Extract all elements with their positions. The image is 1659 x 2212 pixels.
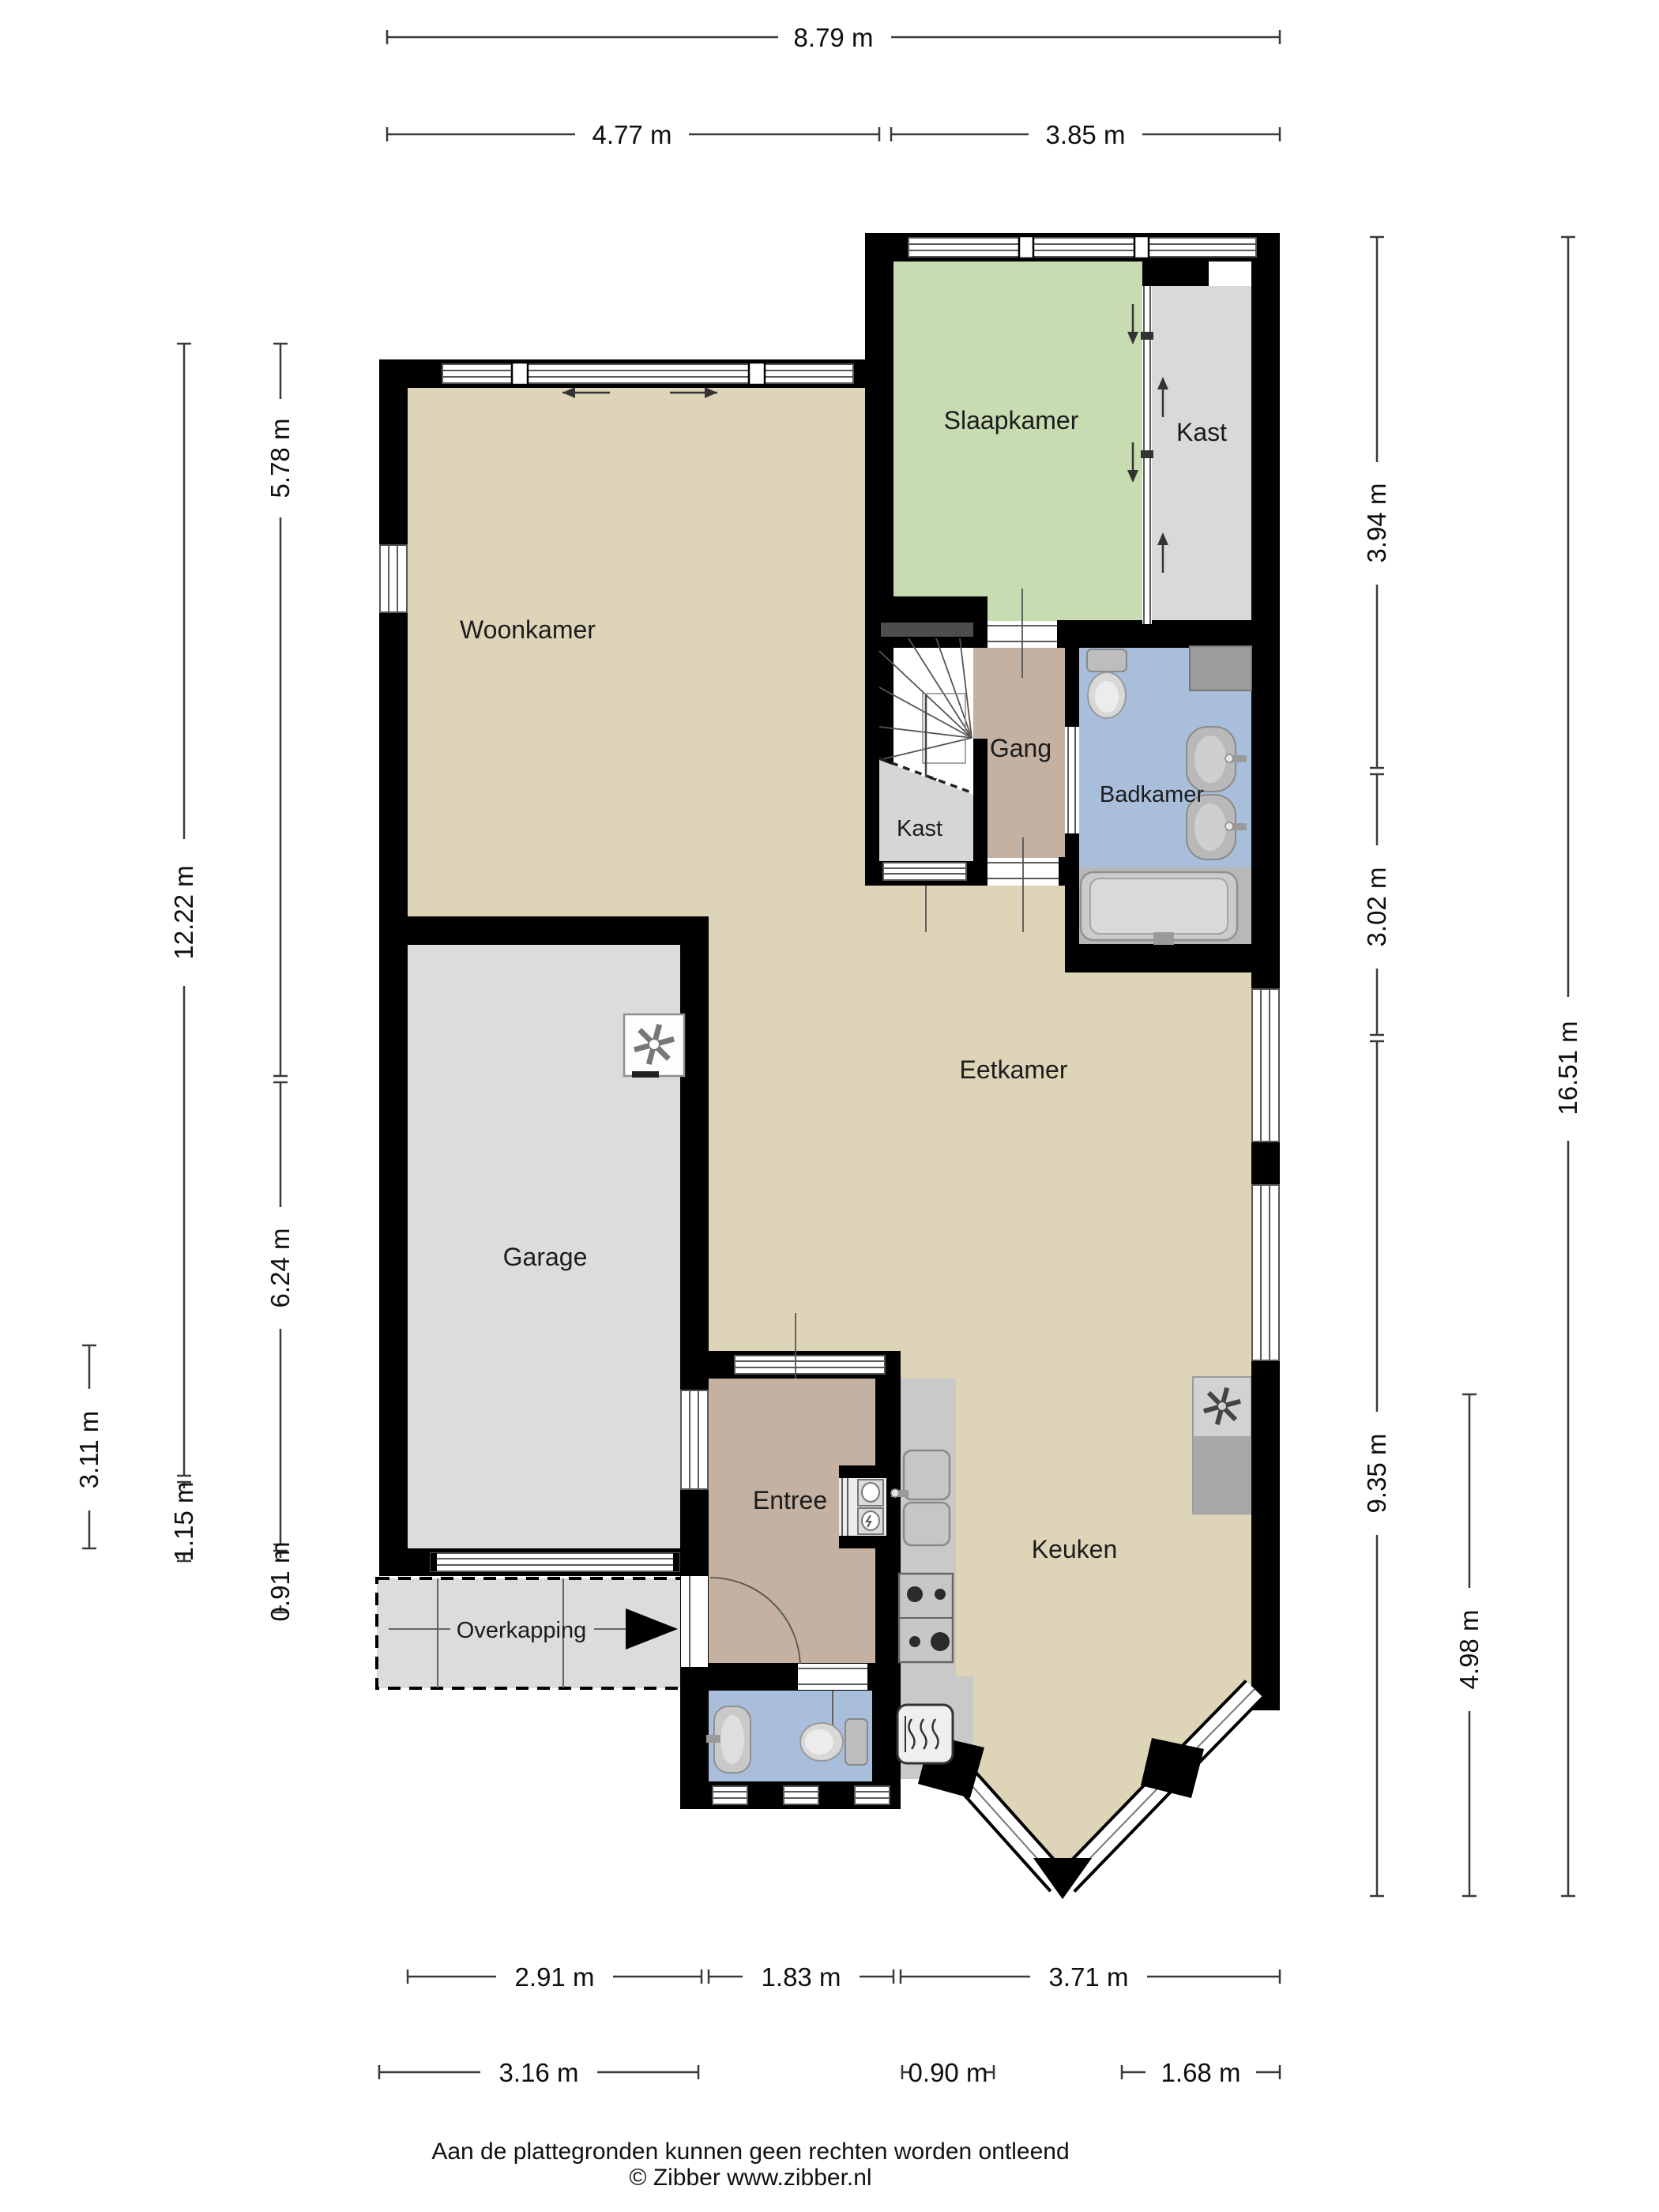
room-label-kast-trap: Kast <box>897 816 942 841</box>
dim-left-small: 0.91 m <box>265 1542 295 1622</box>
footer-copyright: © Zibber www.zibber.nl <box>629 2165 871 2191</box>
dim-bottom-entree: 1.83 m <box>709 1962 893 1992</box>
svg-text:5.78 m: 5.78 m <box>265 419 295 498</box>
bathroom-cabinet <box>1190 646 1251 690</box>
dim-bottom-small: 0.90 m <box>902 2058 994 2087</box>
svg-text:8.79 m: 8.79 m <box>794 23 874 52</box>
dim-right-badkamer: 3.02 m <box>1362 774 1391 1035</box>
dim-top-left: 4.77 m <box>387 120 879 149</box>
room-label-eetkamer: Eetkamer <box>960 1055 1068 1084</box>
room-label-kast-slaapkamer: Kast <box>1176 418 1227 446</box>
floor-kast-slaapkamer <box>1147 286 1266 624</box>
svg-text:3.16 m: 3.16 m <box>499 2058 579 2087</box>
dim-bottom-garage-outer: 3.16 m <box>379 2058 698 2087</box>
dim-left-total: 12.22 m <box>169 344 198 1476</box>
dim-right-total: 16.51 m <box>1553 237 1582 1896</box>
svg-text:12.22 m: 12.22 m <box>169 865 198 959</box>
dim-left-carport-depth: 3.11 m <box>74 1345 103 1548</box>
svg-text:1.15 m: 1.15 m <box>169 1482 198 1562</box>
svg-text:16.51 m: 16.51 m <box>1553 1021 1582 1115</box>
dim-bottom-bay: 1.68 m <box>1122 2058 1280 2087</box>
dim-top-right: 3.85 m <box>891 120 1280 149</box>
room-label-slaapkamer: Slaapkamer <box>944 406 1079 434</box>
dim-left-carport: 1.15 m <box>169 1482 198 1562</box>
dim-left-woonkamer: 5.78 m <box>265 344 295 1076</box>
room-label-badkamer: Badkamer <box>1100 782 1205 807</box>
entree-niche <box>839 1465 886 1548</box>
svg-text:4.77 m: 4.77 m <box>592 120 672 149</box>
svg-text:6.24 m: 6.24 m <box>265 1228 295 1308</box>
svg-text:0.90 m: 0.90 m <box>908 2058 988 2087</box>
room-label-woonkamer: Woonkamer <box>460 615 596 644</box>
toilet-icon <box>1087 649 1127 718</box>
svg-text:3.94 m: 3.94 m <box>1362 483 1391 563</box>
footer: Aan de plattegronden kunnen geen rechten… <box>431 2139 1069 2191</box>
dim-right-eetkamer: 9.35 m <box>1362 1041 1391 1896</box>
toilet-icon <box>800 1719 867 1765</box>
dim-left-garage: 6.24 m <box>265 1082 295 1544</box>
dim-right-slaapkamer: 3.94 m <box>1362 237 1391 768</box>
svg-text:1.68 m: 1.68 m <box>1161 2058 1241 2087</box>
room-label-garage: Garage <box>503 1243 588 1271</box>
floor-woonkamer <box>393 374 879 945</box>
dim-bottom-garage: 2.91 m <box>408 1962 702 1992</box>
svg-text:3.02 m: 3.02 m <box>1362 867 1391 947</box>
svg-text:9.35 m: 9.35 m <box>1362 1434 1391 1514</box>
garage-fan-unit <box>624 1014 684 1078</box>
dim-top-total: 8.79 m <box>387 23 1280 52</box>
room-label-entree: Entree <box>753 1486 827 1514</box>
niche-fixture-boiler-icon <box>858 1508 883 1534</box>
oven-icon <box>897 1705 953 1763</box>
stove-icon <box>899 1574 953 1662</box>
room-label-overkapping: Overkapping <box>457 1618 586 1643</box>
svg-text:3.11 m: 3.11 m <box>74 1411 103 1488</box>
svg-text:0.91 m: 0.91 m <box>265 1542 295 1622</box>
room-label-keuken: Keuken <box>1032 1535 1118 1563</box>
svg-text:4.98 m: 4.98 m <box>1454 1610 1484 1690</box>
counter-hob-block <box>1193 1436 1251 1514</box>
floorplan-page: Woonkamer Slaapkamer Kast Gang Badkamer … <box>0 0 1659 2212</box>
footer-disclaimer: Aan de plattegronden kunnen geen rechten… <box>431 2139 1069 2165</box>
niche-fixture-sink-icon <box>858 1480 883 1506</box>
svg-text:2.91 m: 2.91 m <box>515 1962 595 1992</box>
bathtub-icon <box>1081 872 1237 945</box>
svg-text:1.83 m: 1.83 m <box>762 1962 841 1992</box>
room-label-gang: Gang <box>990 734 1051 762</box>
dim-bottom-keuken: 3.71 m <box>901 1962 1280 1992</box>
floorplan-canvas: Woonkamer Slaapkamer Kast Gang Badkamer … <box>0 0 1659 2212</box>
dim-right-keuken: 4.98 m <box>1454 1394 1484 1896</box>
floor-slaapkamer <box>879 247 1158 624</box>
svg-text:3.71 m: 3.71 m <box>1049 1962 1129 1992</box>
svg-text:3.85 m: 3.85 m <box>1046 120 1126 149</box>
